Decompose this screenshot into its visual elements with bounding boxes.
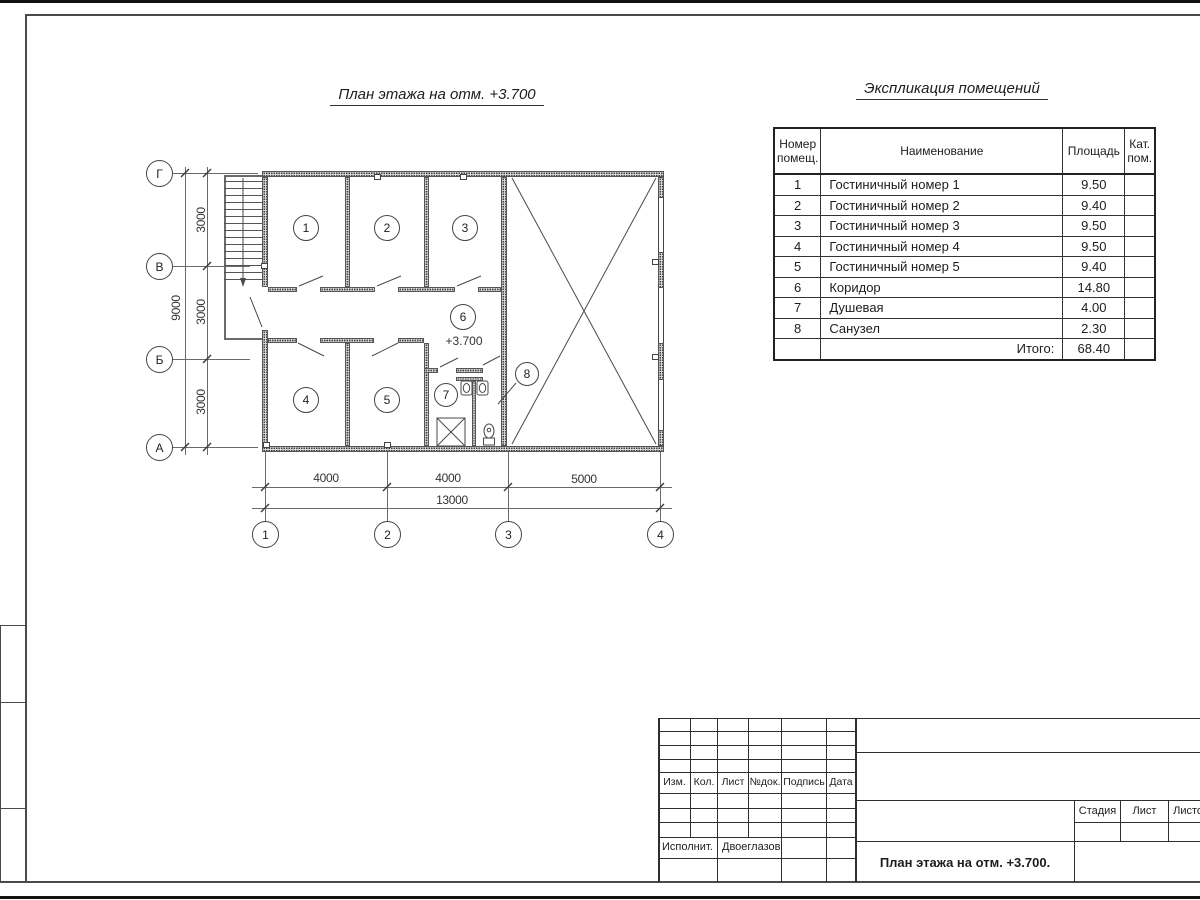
frame-left	[25, 14, 27, 883]
wall-segment	[424, 177, 429, 287]
titleblock-col-kol: Кол.	[691, 776, 717, 788]
cell-name: Гостиничный номер 5	[821, 257, 1063, 278]
room-number: 3	[462, 221, 469, 235]
cell-area: 9.40	[1063, 257, 1125, 278]
wall-segment	[345, 343, 350, 446]
edge-column-line	[0, 625, 25, 626]
cell-cat	[1125, 195, 1155, 216]
wall-segment	[262, 446, 664, 452]
axis-circle: Г	[146, 160, 173, 187]
axis-label: А	[155, 441, 163, 455]
header-number: Номерпомещ.	[774, 128, 821, 174]
room-circle: 7	[434, 383, 458, 407]
titleblock-col-ndok: №док.	[749, 776, 781, 788]
cell-cat	[1125, 257, 1155, 278]
wall-segment	[424, 343, 429, 446]
dimension-line	[252, 508, 672, 509]
cell-area: 14.80	[1063, 277, 1125, 298]
outer-border-top	[0, 0, 1200, 3]
outer-border-bottom	[0, 896, 1200, 899]
cell-area: 9.40	[1063, 195, 1125, 216]
cell-name: Гостиничный номер 3	[821, 216, 1063, 237]
room-number: 8	[524, 367, 531, 381]
total-area: 68.40	[1063, 339, 1125, 360]
header-cat: Кат.пом.	[1125, 128, 1155, 174]
table-row: 8Санузел2.30	[774, 318, 1155, 339]
stair-treads	[224, 181, 262, 284]
edge-column-line	[0, 808, 25, 809]
wall-segment	[268, 338, 297, 343]
cell-num: 8	[774, 318, 821, 339]
wall-segment	[345, 177, 350, 287]
cell-name: Гостиничный номер 2	[821, 195, 1063, 216]
titleblock-line	[855, 800, 1200, 801]
cell-num: 1	[774, 174, 821, 195]
titleblock-line	[717, 718, 718, 882]
wall-segment	[398, 338, 424, 343]
wall-segment	[658, 252, 664, 288]
titleblock-col-list: Лист	[718, 776, 748, 788]
cell-cat	[1125, 339, 1155, 360]
cell-num: 7	[774, 298, 821, 319]
room-number: 4	[303, 393, 310, 407]
executor-label: Исполнит.	[659, 841, 720, 853]
cell-area: 4.00	[1063, 298, 1125, 319]
axis-label: Г	[156, 167, 163, 181]
axis-label: 1	[262, 528, 269, 542]
cell-name: Гостиничный номер 4	[821, 236, 1063, 257]
frame-bottom	[0, 881, 1200, 883]
room-number: 2	[384, 221, 391, 235]
axis-circle: 4	[647, 521, 674, 548]
table-row: 4Гостиничный номер 49.50	[774, 236, 1155, 257]
elevation-mark: +3.700	[445, 334, 482, 348]
drawing-sheet: План этажа на отм. +3.700	[0, 0, 1200, 900]
axis-circle: В	[146, 253, 173, 280]
axis-label: 2	[384, 528, 391, 542]
titleblock-line	[781, 718, 782, 882]
dim-label: 9000	[169, 295, 183, 321]
wall-segment	[424, 368, 438, 373]
dim-label: 3000	[194, 389, 208, 415]
stair-outline	[224, 338, 262, 340]
cell-name: Коридор	[821, 277, 1063, 298]
plan-title: План этажа на отм. +3.700	[317, 86, 557, 103]
frame-top	[25, 14, 1200, 16]
cell-area: 2.30	[1063, 318, 1125, 339]
wall-segment	[658, 177, 664, 198]
wall-jamb	[261, 263, 268, 269]
axis-label: В	[155, 260, 163, 274]
cell-cat	[1125, 216, 1155, 237]
axis-circle: 3	[495, 521, 522, 548]
titleblock-line	[855, 752, 1200, 753]
cell-cat	[1125, 277, 1155, 298]
header-area: Площадь	[1063, 128, 1125, 174]
toilet	[484, 424, 495, 445]
axis-circle: 2	[374, 521, 401, 548]
wall-segment	[268, 287, 297, 292]
cell-num: 3	[774, 216, 821, 237]
wall-jamb	[460, 174, 467, 180]
room-number: 1	[303, 221, 310, 235]
table-row: 3Гостиничный номер 39.50	[774, 216, 1155, 237]
window	[658, 380, 664, 430]
stair-outline	[224, 175, 262, 177]
dim-label: 3000	[194, 299, 208, 325]
dimension-line	[252, 487, 672, 488]
wall-segment	[658, 343, 664, 380]
cell-cat	[1125, 318, 1155, 339]
wall-jamb	[652, 259, 659, 265]
axis-circle: 1	[252, 521, 279, 548]
window	[658, 288, 664, 343]
cell-cat	[1125, 174, 1155, 195]
cell-num: 4	[774, 236, 821, 257]
wall-segment	[456, 368, 483, 373]
titleblock-line	[855, 841, 1200, 842]
wall-jamb	[374, 174, 381, 180]
room-number: 7	[443, 388, 450, 402]
wall-segment	[501, 177, 507, 446]
table-row: 2Гостиничный номер 29.40	[774, 195, 1155, 216]
titleblock-line	[1074, 822, 1200, 823]
wall-jamb	[652, 354, 659, 360]
sheet-label: Лист	[1121, 805, 1168, 817]
cell-area: 9.50	[1063, 216, 1125, 237]
doc-title: План этажа на отм. +3.700.	[856, 855, 1074, 870]
titleblock-col-data: Дата	[827, 776, 855, 788]
room-circle: 6	[450, 304, 476, 330]
cell-num	[774, 339, 821, 360]
titleblock-line	[658, 718, 660, 882]
dim-label: 3000	[194, 207, 208, 233]
void-cross-marks	[512, 178, 656, 444]
wall-segment	[456, 377, 483, 381]
cell-num: 6	[774, 277, 821, 298]
cell-num: 5	[774, 257, 821, 278]
room-circle: 3	[452, 215, 478, 241]
dim-label: 4000	[435, 471, 461, 485]
titleblock-line	[826, 718, 827, 882]
explication-table: Номерпомещ. Наименование Площадь Кат.пом…	[773, 127, 1156, 361]
total-label: Итого:	[821, 339, 1063, 360]
wall-jamb	[384, 442, 391, 448]
cell-cat	[1125, 236, 1155, 257]
cell-name: Санузел	[821, 318, 1063, 339]
room-circle: 8	[515, 362, 539, 386]
window	[658, 198, 664, 252]
wall-segment	[398, 287, 455, 292]
table-row: 1Гостиничный номер 19.50	[774, 174, 1155, 195]
wall-segment	[478, 287, 501, 292]
table-row: 6Коридор14.80	[774, 277, 1155, 298]
table-row: 7Душевая4.00	[774, 298, 1155, 319]
dim-label: 5000	[571, 472, 597, 486]
axis-label: 3	[505, 528, 512, 542]
titleblock-line	[658, 718, 1200, 719]
axis-circle: А	[146, 434, 173, 461]
dim-label: 13000	[436, 493, 468, 507]
cell-name: Гостиничный номер 1	[821, 174, 1063, 195]
edge-column-line	[0, 702, 25, 703]
table-total-row: Итого:68.40	[774, 339, 1155, 360]
edge-column-line	[0, 625, 1, 882]
room-circle: 5	[374, 387, 400, 413]
titleblock-col-podpis: Подпись	[782, 776, 826, 788]
axis-line	[172, 266, 250, 267]
cell-num: 2	[774, 195, 821, 216]
room-circle: 1	[293, 215, 319, 241]
axis-line	[172, 359, 250, 360]
axis-circle: Б	[146, 346, 173, 373]
table-row: 5Гостиничный номер 59.40	[774, 257, 1155, 278]
room-circle: 4	[293, 387, 319, 413]
table-header-row: Номерпомещ. Наименование Площадь Кат.пом…	[774, 128, 1155, 174]
cell-cat	[1125, 298, 1155, 319]
axis-label: Б	[156, 353, 164, 367]
sheets-label: Листов	[1169, 805, 1200, 817]
room-number: 5	[384, 393, 391, 407]
dim-label: 4000	[313, 471, 339, 485]
cell-area: 9.50	[1063, 236, 1125, 257]
dimension-line	[185, 167, 186, 455]
cell-area: 9.50	[1063, 174, 1125, 195]
header-name: Наименование	[821, 128, 1063, 174]
explication-title: Экспликация помещений	[832, 80, 1072, 97]
cell-name: Душевая	[821, 298, 1063, 319]
titleblock-col-izm: Изм.	[659, 776, 690, 788]
stage-label: Стадия	[1075, 805, 1120, 817]
wall-segment	[262, 330, 268, 446]
wall-jamb	[263, 442, 270, 448]
room-number: 6	[460, 310, 467, 324]
wall-segment	[320, 287, 375, 292]
executor-name: Двоеглазов	[719, 841, 784, 853]
wall-segment	[262, 177, 268, 287]
axis-label: 4	[657, 528, 664, 542]
room-circle: 2	[374, 215, 400, 241]
wall-segment	[472, 381, 476, 446]
wall-segment	[658, 430, 664, 446]
shower-tray	[437, 418, 465, 446]
